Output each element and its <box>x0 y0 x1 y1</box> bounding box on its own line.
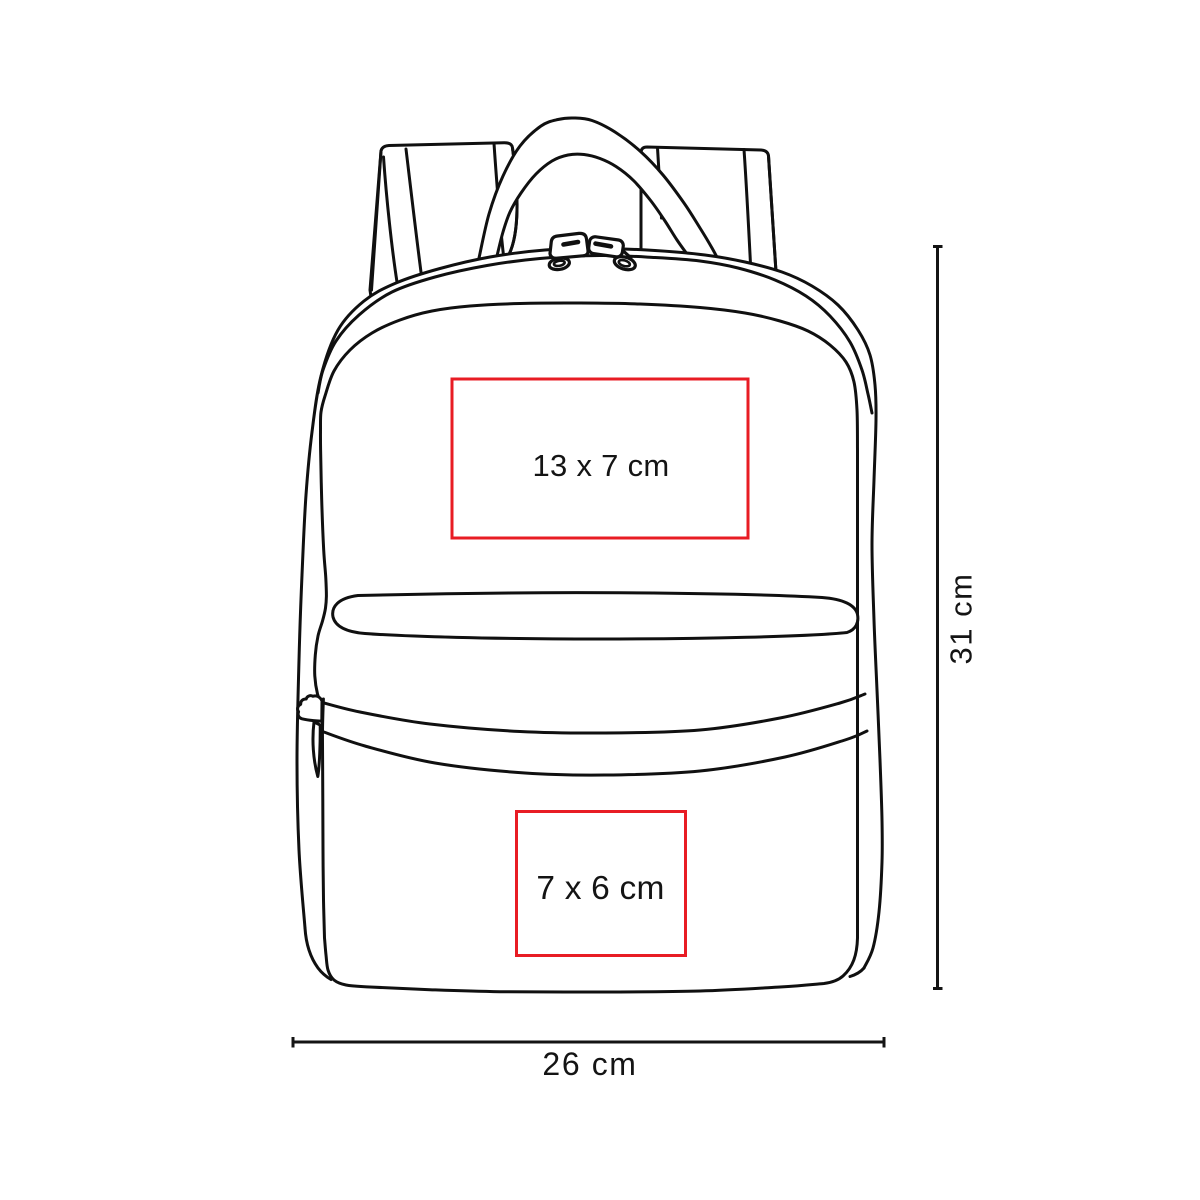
svg-text:7 x 6 cm: 7 x 6 cm <box>536 870 664 907</box>
svg-text:26 cm: 26 cm <box>542 1046 637 1082</box>
svg-text:13 x 7 cm: 13 x 7 cm <box>532 448 669 483</box>
svg-text:31 cm: 31 cm <box>944 573 979 665</box>
